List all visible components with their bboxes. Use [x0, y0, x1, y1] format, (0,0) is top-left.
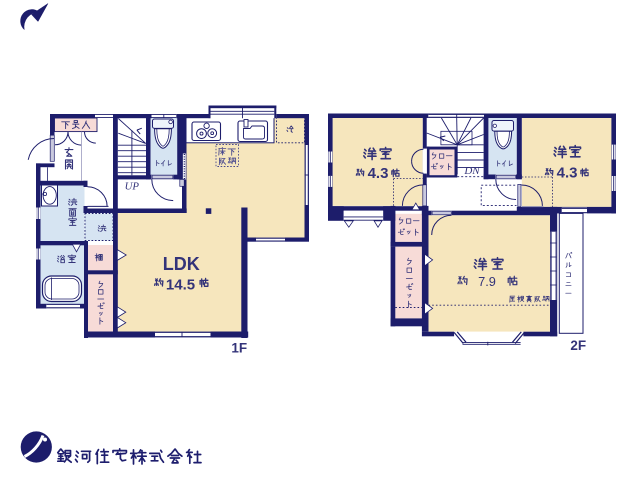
svg-text:7.9: 7.9 [478, 274, 496, 289]
svg-text:LDK: LDK [163, 254, 200, 274]
svg-text:1F: 1F [231, 341, 247, 356]
svg-text:2F: 2F [570, 338, 586, 353]
svg-text:UP: UP [125, 181, 140, 193]
svg-text:DN: DN [463, 165, 480, 177]
svg-text:4.3: 4.3 [557, 164, 578, 181]
svg-text:4.3: 4.3 [368, 165, 389, 182]
svg-text:14.5: 14.5 [166, 276, 195, 293]
